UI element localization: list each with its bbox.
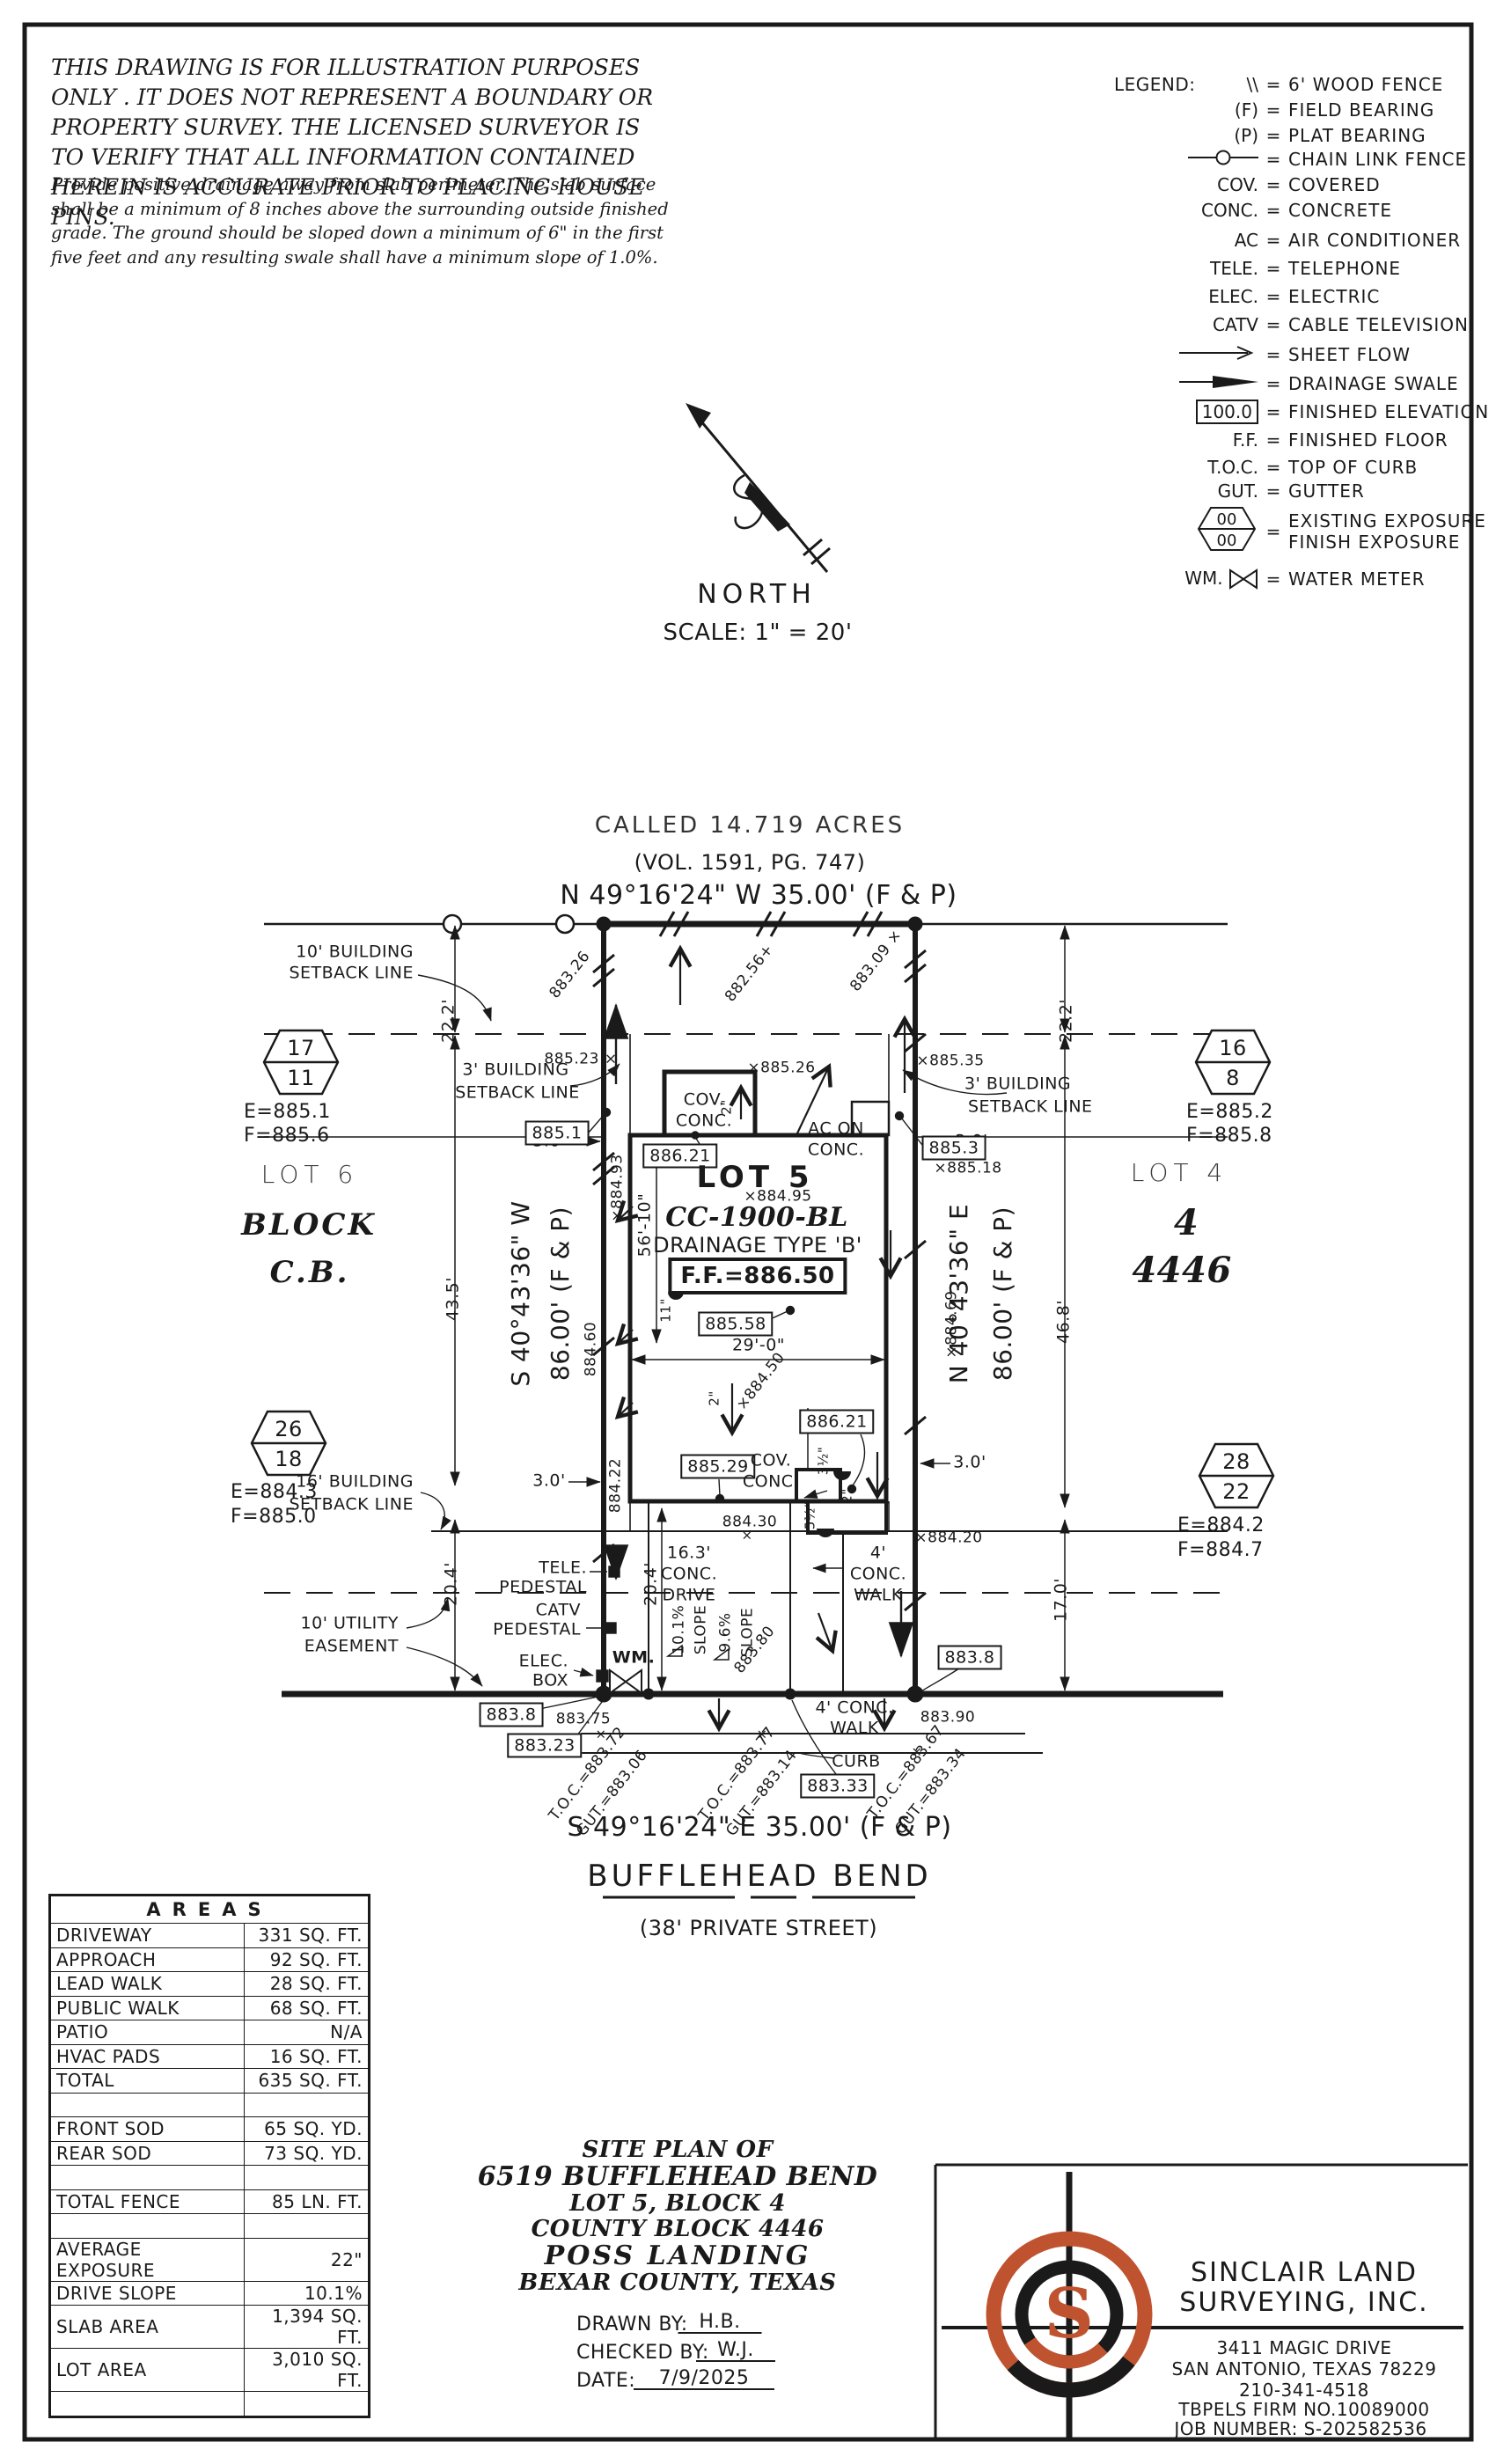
hex4-e-value: E=884.2 bbox=[1177, 1516, 1265, 1536]
areas-table: AREAS DRIVEWAY331 SQ. FT. APPROACH92 SQ.… bbox=[48, 1894, 370, 2418]
dim-43-5: 43.5' bbox=[445, 1277, 462, 1321]
cov-conc-upper-line2: CONC. bbox=[676, 1113, 732, 1130]
boxed-883-8-left: 883.8 bbox=[480, 1707, 544, 1724]
boxed-886-21-lower: 886.21 bbox=[799, 1414, 874, 1431]
setback-3ft-right-line2: SETBACK LINE bbox=[968, 1099, 1093, 1116]
rear-boundary-line bbox=[264, 912, 1228, 936]
conc-drive-line1: 16.3' bbox=[667, 1545, 711, 1562]
table-row bbox=[50, 2093, 370, 2117]
walk-x-right: × bbox=[911, 1746, 922, 1759]
boxed-885-3: 885.3 bbox=[922, 1140, 986, 1157]
firm-phone: 210-341-4518 bbox=[1239, 2381, 1369, 2399]
table-row: TOTAL635 SQ. FT. bbox=[50, 2069, 370, 2094]
hex2-f-value: F=885.8 bbox=[1186, 1126, 1272, 1146]
curb-label: CURB bbox=[832, 1754, 880, 1771]
boxed-883-8-right: 883.8 bbox=[938, 1650, 1002, 1667]
hex1-existing: 17 bbox=[287, 1038, 315, 1059]
areas-table-title: AREAS bbox=[50, 1896, 370, 1924]
hex4-finish: 22 bbox=[1222, 1481, 1250, 1502]
cov-conc-lower-line1: COV. bbox=[751, 1453, 791, 1470]
title-line-4: COUNTY BLOCK 4446 bbox=[532, 2218, 825, 2240]
boxed-885-1: 885.1 bbox=[525, 1126, 590, 1142]
table-row: DRIVE SLOPE10.1% bbox=[50, 2281, 370, 2306]
finished-floor-value: F.F.=886.50 bbox=[668, 1265, 847, 1287]
spot-884-20: ×884.20 bbox=[914, 1531, 982, 1546]
legend-row-exposure-hexagon: 0000 = EXISTING EXPOSUREFINISH EXPOSURE bbox=[1104, 503, 1486, 559]
table-row: PUBLIC WALK68 SQ. FT. bbox=[50, 1996, 370, 2020]
table-row bbox=[50, 2392, 370, 2417]
legend-row-water-meter: WM. =WATER METER bbox=[1104, 568, 1426, 590]
dim-3-0-bottom-right: 3.0' bbox=[953, 1455, 986, 1471]
chain-link-symbol bbox=[1104, 149, 1258, 170]
table-row: LEAD WALK28 SQ. FT. bbox=[50, 1972, 370, 1997]
firm-address-line1: 3411 MAGIC DRIVE bbox=[1216, 2339, 1391, 2357]
street-boundary-line bbox=[282, 1686, 1223, 1702]
legend-row-finished-floor: F.F.=FINISHED FLOOR bbox=[1104, 429, 1448, 451]
svg-text:00: 00 bbox=[1217, 510, 1237, 529]
table-row: SLAB AREA1,394 SQ. FT. bbox=[50, 2306, 370, 2349]
dim-2in-patio: 2" bbox=[841, 1488, 854, 1503]
sheet-flow-symbol bbox=[1104, 344, 1258, 365]
dim-20-4-drive: 20.4' bbox=[643, 1562, 660, 1606]
hex3-existing: 26 bbox=[275, 1419, 303, 1440]
ac-on-conc-line1: AC ON bbox=[808, 1121, 864, 1138]
north-label: NORTH bbox=[697, 582, 817, 608]
lot6-label: LOT 6 bbox=[261, 1162, 358, 1187]
wood-fence-symbol: \\ bbox=[1104, 74, 1258, 95]
spot-883-90: 883.90 bbox=[920, 1711, 975, 1726]
legend-row-concrete: CONC.=CONCRETE bbox=[1104, 200, 1392, 221]
firm-name-line1: SINCLAIR LAND bbox=[1191, 2260, 1418, 2286]
table-row: TOTAL FENCE85 LN. FT. bbox=[50, 2189, 370, 2214]
called-acres-label: CALLED 14.719 ACRES bbox=[595, 814, 905, 837]
title-line-3: LOT 5, BLOCK 4 bbox=[569, 2192, 786, 2215]
volume-page-label: (VOL. 1591, PG. 747) bbox=[634, 852, 866, 873]
legend-row-covered: COV.=COVERED bbox=[1104, 174, 1381, 195]
legend-row-electric: ELEC.=ELECTRIC bbox=[1104, 286, 1380, 307]
drainage-type: DRAINAGE TYPE 'B' bbox=[653, 1235, 862, 1256]
boxed-885-58: 885.58 bbox=[698, 1316, 773, 1333]
lot5-title: LOT 5 bbox=[696, 1162, 813, 1192]
scale-label: SCALE: 1" = 20' bbox=[664, 621, 853, 644]
county-block-4446-label: 4446 bbox=[1132, 1253, 1231, 1288]
setback-16ft-label-line2: SETBACK LINE bbox=[289, 1497, 414, 1514]
firm-logo-letter: S bbox=[1045, 2280, 1095, 2349]
street-walk-line1: 4' CONC. bbox=[815, 1700, 893, 1717]
legend-row-plat-bearing: (P)=PLAT BEARING bbox=[1104, 125, 1426, 146]
firm-address-line2: SAN ANTONIO, TEXAS 78229 bbox=[1172, 2360, 1437, 2378]
conc-walk-line3: WALK bbox=[854, 1588, 903, 1604]
street-walk-line2: WALK bbox=[830, 1720, 879, 1737]
table-row: HVAC PADS16 SQ. FT. bbox=[50, 2044, 370, 2069]
left-bearing-label: S 40°43'36" W bbox=[509, 1200, 533, 1386]
svg-text:00: 00 bbox=[1217, 532, 1237, 550]
street-type: (38' PRIVATE STREET) bbox=[640, 1918, 877, 1939]
table-row: AVERAGE EXPOSURE22" bbox=[50, 2238, 370, 2281]
dim-56-10: 56'-10" bbox=[637, 1193, 654, 1258]
catv-pedestal-line2: PEDESTAL bbox=[493, 1622, 581, 1639]
hex4-f-value: F=884.7 bbox=[1177, 1541, 1264, 1560]
exposure-hexagon-symbol: 0000 bbox=[1104, 503, 1258, 559]
legend-row-wood-fence: \\ =6' WOOD FENCE bbox=[1104, 74, 1443, 95]
boxed-883-33: 883.33 bbox=[800, 1778, 875, 1795]
legend-row-telephone: TELE.=TELEPHONE bbox=[1104, 258, 1401, 279]
legend-row-sheet-flow: =SHEET FLOW bbox=[1104, 344, 1411, 365]
hex1-e-value: E=885.1 bbox=[244, 1103, 331, 1122]
walk-x-middle: × bbox=[756, 1728, 767, 1742]
finished-elevation-symbol: 100.0 bbox=[1196, 400, 1258, 424]
dim-3-0-bottom-left: 3.0' bbox=[532, 1473, 565, 1490]
legend-row-chain-link: =CHAIN LINK FENCE bbox=[1104, 149, 1467, 170]
lot4-label: LOT 4 bbox=[1131, 1161, 1228, 1185]
dim-11in: 11" bbox=[660, 1298, 673, 1323]
drive-slope-1-value: 10.1% bbox=[672, 1605, 687, 1655]
water-meter-label: WM. bbox=[612, 1650, 656, 1667]
legend-row-finished-elevation: 100.0 =FINISHED ELEVATION bbox=[1104, 401, 1489, 422]
elec-box-line1: ELEC. bbox=[519, 1654, 568, 1670]
tele-pedestal-line2: PEDESTAL bbox=[499, 1580, 587, 1596]
walk-x-left: × bbox=[595, 1728, 606, 1742]
firm-job-number: JOB NUMBER: S-202582536 bbox=[1174, 2420, 1426, 2438]
spot-885-18: ×885.18 bbox=[934, 1162, 1001, 1177]
setback-10ft-label-line1: 10' BUILDING bbox=[296, 944, 414, 961]
spot-884-30-x: × bbox=[741, 1529, 752, 1543]
street-bearing: S 49°16'24" E 35.00' (F & P) bbox=[567, 1815, 951, 1841]
table-row bbox=[50, 2214, 370, 2239]
site-plan-sheet: THIS DRAWING IS FOR ILLUSTRATION PURPOSE… bbox=[0, 0, 1496, 2464]
utility-easement-label-line1: 10' UTILITY bbox=[301, 1616, 399, 1632]
dim-20-4-left: 20.4' bbox=[444, 1562, 460, 1606]
table-row: LOT AREA3,010 SQ. FT. bbox=[50, 2349, 370, 2392]
conc-walk-line2: CONC. bbox=[850, 1566, 906, 1583]
cov-conc-lower-line2: CONC. bbox=[743, 1474, 799, 1491]
right-distance-label: 86.00' (F & P) bbox=[991, 1206, 1016, 1381]
legend-row-top-of-curb: T.O.C.=TOP OF CURB bbox=[1104, 457, 1418, 478]
tele-pedestal-line1: TELE. bbox=[539, 1560, 587, 1577]
conc-drive-line3: DRIVE bbox=[663, 1588, 716, 1604]
cov-conc-upper-line1: COV. bbox=[684, 1092, 724, 1109]
street-name: BUFFLEHEAD BEND bbox=[587, 1861, 931, 1891]
plan-number: CC-1900-BL bbox=[665, 1205, 848, 1231]
spot-884-22: 884.22 bbox=[609, 1458, 624, 1513]
table-row: REAR SOD73 SQ. YD. bbox=[50, 2141, 370, 2166]
table-row: FRONT SOD65 SQ. YD. bbox=[50, 2117, 370, 2142]
firm-name-line2: SURVEYING, INC. bbox=[1179, 2290, 1428, 2316]
spot-885-26: ×885.26 bbox=[747, 1061, 815, 1076]
legend-row-drainage-swale: =DRAINAGE SWALE bbox=[1104, 373, 1459, 394]
setback-3ft-right-line1: 3' BUILDING bbox=[964, 1076, 1071, 1093]
title-line-2: 6519 BUFFLEHEAD BEND bbox=[478, 2164, 878, 2190]
elec-box-line2: BOX bbox=[532, 1673, 568, 1690]
dim-5half-in: 5½" bbox=[804, 1501, 818, 1529]
legend-row-air-conditioner: AC=AIR CONDITIONER bbox=[1104, 230, 1461, 251]
dim-22-2-right: 22.2' bbox=[1059, 999, 1075, 1043]
spot-884-69: ×884.69 bbox=[945, 1290, 960, 1358]
disclaimer-drainage-note: Provide positive drainage away from slab… bbox=[51, 172, 688, 270]
catv-pedestal-line1: CATV bbox=[536, 1602, 581, 1619]
hex4-existing: 28 bbox=[1222, 1451, 1250, 1472]
north-arrow bbox=[686, 403, 830, 572]
drive-slope-2-value: 9.6% bbox=[719, 1612, 734, 1652]
left-distance-label: 86.00' (F & P) bbox=[548, 1206, 573, 1381]
title-line-6: BEXAR COUNTY, TEXAS bbox=[518, 2271, 836, 2294]
date-value: 7/9/2025 bbox=[634, 2369, 774, 2390]
water-meter-symbol bbox=[610, 1670, 642, 1693]
block-word-label: BLOCK bbox=[241, 1210, 377, 1240]
checked-by-value: W.J. bbox=[696, 2341, 775, 2362]
hex2-e-value: E=885.2 bbox=[1186, 1103, 1273, 1122]
title-line-1: SITE PLAN OF bbox=[582, 2138, 773, 2161]
setback-16ft-label-line1: 16' BUILDING bbox=[296, 1474, 414, 1491]
hex3-finish: 18 bbox=[275, 1448, 303, 1470]
hex2-finish: 8 bbox=[1226, 1067, 1240, 1089]
dim-3half-in: 3½" bbox=[818, 1447, 831, 1475]
legend-row-gutter: GUT.=GUTTER bbox=[1104, 480, 1365, 502]
utility-easement-label-line2: EASEMENT bbox=[304, 1639, 399, 1655]
conc-drive-line2: CONC. bbox=[661, 1566, 717, 1583]
legend-row-field-bearing: (F)=FIELD BEARING bbox=[1104, 99, 1434, 121]
spot-884-60: 884.60 bbox=[584, 1322, 599, 1376]
dim-22-2-left: 22.2' bbox=[441, 999, 458, 1043]
table-row: PATION/A bbox=[50, 2020, 370, 2045]
firm-license-number: TBPELS FIRM NO.10089000 bbox=[1178, 2401, 1429, 2418]
dim-17-0: 17.0' bbox=[1053, 1578, 1070, 1622]
spot-883-75: 883.75 bbox=[556, 1712, 611, 1727]
drawn-by-value: H.B. bbox=[678, 2313, 762, 2334]
dim-2in-drive: 2" bbox=[708, 1390, 722, 1405]
hex1-f-value: F=885.6 bbox=[244, 1126, 330, 1146]
rear-bearing-label: N 49°16'24" W 35.00' (F & P) bbox=[560, 883, 957, 909]
checked-by-label: CHECKED BY: bbox=[576, 2343, 709, 2363]
setback-3ft-left-line2: SETBACK LINE bbox=[455, 1085, 580, 1102]
spot-885-23: 885.23 × bbox=[544, 1052, 617, 1067]
hex1-finish: 11 bbox=[287, 1067, 315, 1089]
table-row: DRIVEWAY331 SQ. FT. bbox=[50, 1924, 370, 1948]
legend-row-cable-tv: CATV=CABLE TELEVISION bbox=[1104, 314, 1469, 335]
drive-slope-1-word: SLOPE bbox=[694, 1605, 709, 1655]
date-label: DATE: bbox=[576, 2372, 635, 2391]
drive-slope-2-word: SLOPE bbox=[741, 1608, 756, 1658]
drawn-by-label: DRAWN BY: bbox=[576, 2315, 688, 2335]
spot-885-35: ×885.35 bbox=[916, 1054, 984, 1069]
spot-884-93: ×884.93 bbox=[611, 1154, 626, 1221]
table-row bbox=[50, 2166, 370, 2190]
conc-walk-line1: 4' bbox=[870, 1545, 886, 1562]
street-name-underline bbox=[603, 1894, 920, 1901]
block-cb-label: C.B. bbox=[270, 1258, 350, 1287]
boxed-883-23: 883.23 bbox=[507, 1738, 582, 1755]
setback-10ft-label-line2: SETBACK LINE bbox=[289, 965, 414, 982]
table-row: APPROACH92 SQ. FT. bbox=[50, 1947, 370, 1972]
block4-label: 4 bbox=[1174, 1206, 1199, 1241]
title-line-5: POSS LANDING bbox=[545, 2243, 811, 2270]
dim-46-8: 46.8' bbox=[1056, 1300, 1073, 1344]
drainage-swale-symbol bbox=[1104, 373, 1258, 394]
hex2-existing: 16 bbox=[1219, 1038, 1247, 1059]
ac-on-conc-line2: CONC. bbox=[808, 1142, 864, 1159]
